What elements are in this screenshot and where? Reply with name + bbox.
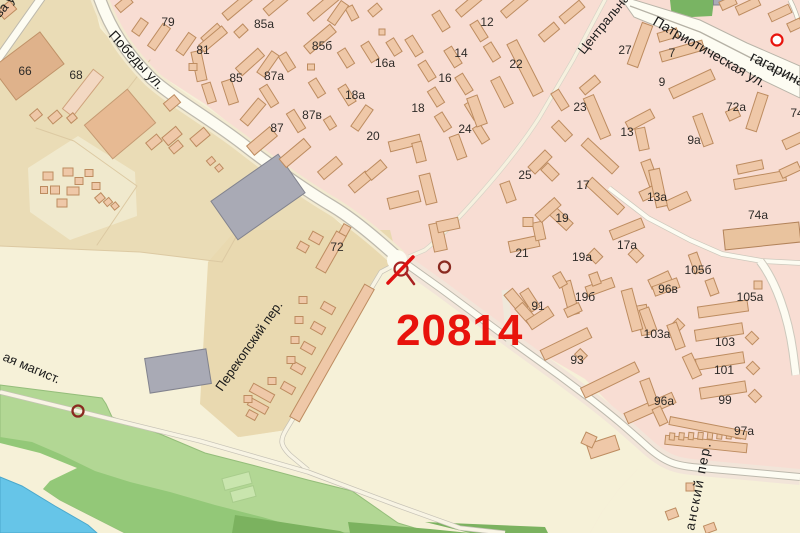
svg-text:17: 17 — [576, 178, 590, 192]
svg-text:85а: 85а — [254, 17, 274, 31]
svg-text:23: 23 — [573, 100, 587, 114]
svg-text:16: 16 — [438, 71, 452, 85]
svg-text:20814: 20814 — [396, 306, 523, 355]
svg-text:87: 87 — [270, 121, 284, 135]
svg-text:68: 68 — [69, 68, 83, 82]
svg-text:101: 101 — [714, 363, 734, 377]
svg-text:20: 20 — [366, 129, 380, 143]
svg-text:19а: 19а — [572, 250, 592, 264]
svg-text:18а: 18а — [345, 88, 365, 102]
svg-text:22: 22 — [509, 57, 523, 71]
svg-text:93: 93 — [570, 353, 584, 367]
svg-text:24: 24 — [458, 122, 472, 136]
svg-text:7: 7 — [669, 46, 676, 60]
svg-text:19б: 19б — [575, 290, 595, 304]
svg-text:13: 13 — [620, 125, 634, 139]
svg-text:79: 79 — [161, 15, 175, 29]
svg-text:13а: 13а — [647, 190, 667, 204]
svg-text:97а: 97а — [734, 424, 754, 438]
svg-text:21: 21 — [515, 246, 529, 260]
svg-text:87а: 87а — [264, 69, 284, 83]
svg-text:105б: 105б — [685, 263, 712, 277]
svg-text:16а: 16а — [375, 56, 395, 70]
svg-text:27: 27 — [618, 43, 632, 57]
svg-text:74а: 74а — [748, 208, 768, 222]
svg-text:85: 85 — [229, 71, 243, 85]
svg-text:103: 103 — [715, 335, 735, 349]
svg-text:9: 9 — [659, 75, 666, 89]
svg-text:66: 66 — [18, 64, 32, 78]
svg-text:81: 81 — [196, 43, 210, 57]
svg-text:85б: 85б — [312, 39, 332, 53]
svg-text:18: 18 — [411, 101, 425, 115]
svg-text:87в: 87в — [302, 108, 322, 122]
svg-text:72а: 72а — [726, 100, 746, 114]
svg-text:14: 14 — [454, 46, 468, 60]
svg-text:96а: 96а — [654, 394, 674, 408]
svg-text:105а: 105а — [737, 290, 764, 304]
svg-text:74: 74 — [790, 106, 800, 120]
svg-text:91: 91 — [531, 299, 545, 313]
svg-text:9а: 9а — [687, 133, 701, 147]
svg-text:12: 12 — [480, 15, 494, 29]
svg-text:19: 19 — [555, 211, 569, 225]
svg-text:72: 72 — [330, 240, 344, 254]
svg-text:17а: 17а — [617, 238, 637, 252]
svg-text:99: 99 — [718, 393, 732, 407]
svg-text:25: 25 — [518, 168, 532, 182]
svg-text:96в: 96в — [658, 282, 678, 296]
svg-text:103а: 103а — [644, 327, 671, 341]
